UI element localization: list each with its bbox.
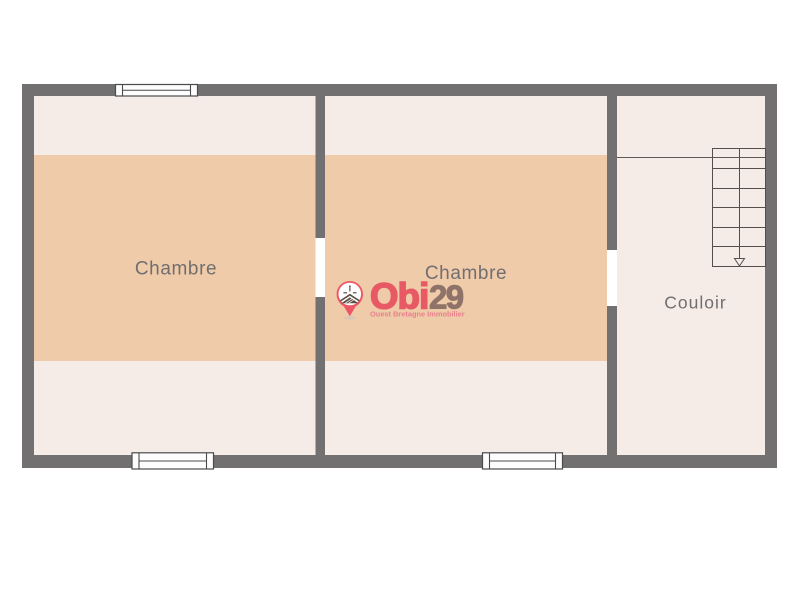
svg-text:Couloir: Couloir	[664, 293, 726, 313]
svg-text:Ouest Bretagne Immobilier: Ouest Bretagne Immobilier	[370, 310, 465, 319]
svg-text:Chambre: Chambre	[135, 259, 217, 280]
